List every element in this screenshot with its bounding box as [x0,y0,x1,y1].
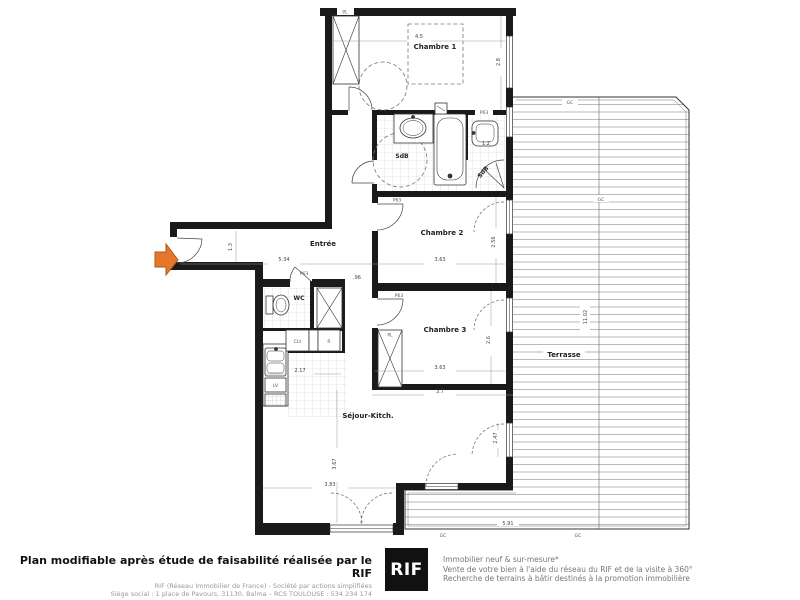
footer-company-lines: RIF (Réseau Immobilier de France) - Soci… [0,582,372,598]
placard1-label: PL [342,10,348,16]
wall-entree-top [170,222,332,229]
bed-chambre1 [408,24,463,84]
dim-chambre1-width: 4.5 [415,34,423,40]
deck-label-right: GC [598,197,605,203]
footer-tagline1: Immobilier neuf & sur-mesure* [443,555,793,565]
sdb-door [352,161,374,183]
dim-passage: .96 [353,275,361,281]
entree-label: Entrée [310,240,336,248]
rif-logo: RIF [385,548,428,591]
wall-wc-east [310,281,314,330]
kitchen-floor [287,352,347,417]
wall-ch1-south [332,110,348,115]
chambre3-door [377,299,403,325]
wall-ch2-south [372,283,513,291]
footer-headline: Plan modifiable après étude de faisabili… [0,554,372,580]
swing-sejour-east [472,424,504,456]
wall-se-step-vert [396,483,404,535]
dim-chambre3-width2: 3.7 [436,389,444,395]
dim-chambre3-height: 2.6 [486,336,492,344]
dim-sejour-width: 3.83 [324,482,335,488]
dim-entree-height: 1.3 [228,243,234,251]
kitchen-counter [263,344,288,406]
floor-plan-svg: Chambre 1 Chambre 2 Chambre 3 SdB SdB WC… [0,0,800,548]
footer-company-line2: Siège social : 1 place de Pavours, 31130… [0,590,372,598]
walls [170,8,516,535]
entrance-arrow [155,244,178,275]
swing-sejour-south [426,454,458,486]
wc-label: WC [293,295,305,302]
bathtub [434,114,466,185]
swing-french-right [361,493,392,524]
door-label-chambre2: P63 [393,198,402,204]
dim-entree-width: 5.34 [278,257,289,263]
cellier-label: CLt [294,339,302,345]
wall-entree-bottom [170,262,262,270]
closet-chambre3 [378,330,402,387]
deck-label-top: GC [567,100,574,106]
wall-left-upper [325,8,332,229]
clearance-circle-chambre1 [359,62,407,110]
toilet [266,295,289,315]
door-label-chambre3: P63 [395,293,404,299]
wall-se-step-horiz [396,483,425,490]
deck-label-bottom: GC [575,533,582,539]
dim-terrasse-width: 5.91 [502,521,513,527]
oven [265,394,286,406]
closet-wc [317,288,342,328]
chambre1-label: Chambre 1 [414,43,457,51]
deck-label-bottom-left: GC [440,533,447,539]
refrigerateur-label: R [327,339,330,345]
door-label-wc: P63 [300,271,309,277]
dim-chambre2-height: 2.56 [491,236,497,247]
wall-bottom [255,523,330,535]
floor-plan-page: Chambre 1 Chambre 2 Chambre 3 SdB SdB WC… [0,0,800,600]
entry-door [177,238,202,263]
dim-sejour-door: 2.47 [493,432,499,443]
swing-french-left [331,493,362,524]
wall-ch2-north [372,191,506,197]
dim-terrasse-height: 11.02 [583,310,589,324]
wall-spine [372,197,378,203]
swing-chambre3 [474,300,504,330]
dim-kitchen-width: 2.17 [294,368,305,374]
terrace-door-swings [331,202,504,524]
footer-left-block: Plan modifiable après étude de faisabili… [0,554,372,598]
footer-tagline2: Vente de votre bien à l'aide du réseau d… [443,565,793,575]
wall-right [506,8,513,36]
door-label-sdb2: P63 [480,110,489,116]
footer-company-line1: RIF (Réseau Immobilier de France) - Soci… [0,582,372,590]
dim-chambre3-width: 3.63 [434,365,445,371]
terrasse-label: Terrasse [547,351,581,359]
footer: Plan modifiable après étude de faisabili… [0,546,800,600]
chambre2-label: Chambre 2 [421,229,464,237]
sdb-washbasin [394,114,433,143]
footer-tagline3: Recherche de terrains à bâtir destinés à… [443,574,793,584]
wall-wc-north [255,279,290,287]
dim-chambre2-width: 3.63 [434,257,445,263]
wall-storage-east [342,285,345,352]
dim-chambre1-height: 2.8 [496,58,502,66]
dim-sejour-height: 3.67 [332,458,338,469]
sdb-label: SdB [395,153,409,160]
chambre3-label: Chambre 3 [424,326,467,334]
closet-chambre1 [333,16,359,84]
dim-sdb2-width: 1.2 [482,141,490,147]
swing-chambre2 [474,202,504,232]
wall-left-lower [255,262,263,535]
chambre2-door [377,204,403,230]
footer-right-block: Immobilier neuf & sur-mesure* Vente de v… [443,555,793,584]
wall-sdb-west [372,110,377,160]
sejour-label: Séjour-Kitch. [342,412,393,420]
placard2-label: PL [387,333,393,339]
chambre1-door [349,87,372,111]
